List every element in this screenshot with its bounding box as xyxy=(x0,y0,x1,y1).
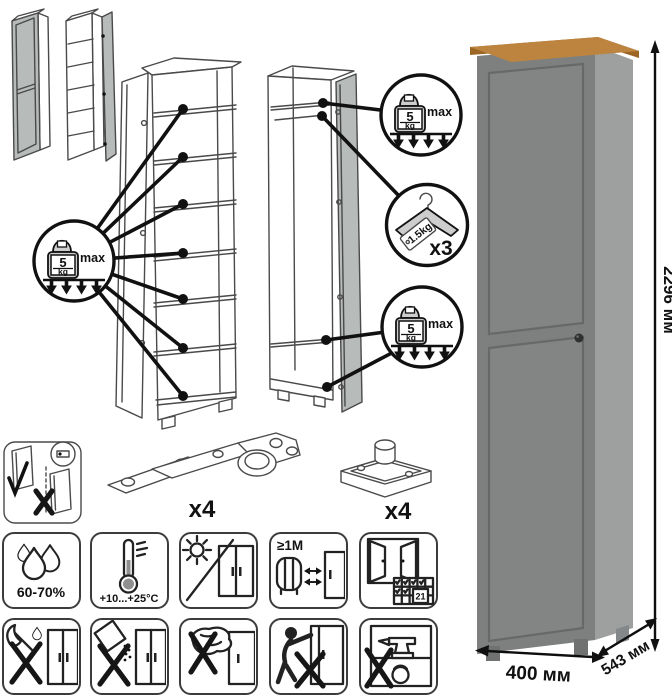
temperature-icon xyxy=(120,540,147,593)
no-sunlight-icon-box xyxy=(179,532,258,609)
foot-icon xyxy=(341,440,431,497)
shelf-load-badge xyxy=(34,221,114,301)
ventilation-icon-box: 21 xyxy=(359,532,438,609)
hanging-section-diagram: 1.5kg x3 xyxy=(250,52,480,447)
no-liquids-icon-box xyxy=(2,618,81,695)
width-dimension-label: 400 мм xyxy=(505,662,571,686)
calendar-days-label: 21 xyxy=(415,592,425,602)
distance-label: ≥1М xyxy=(277,538,303,553)
hinge-count-label: x4 xyxy=(189,496,216,523)
depth-dimension-label: 543 мм xyxy=(599,637,653,679)
humidity-icon xyxy=(18,544,59,579)
height-dimension-label: 2296 мм xyxy=(660,266,672,334)
ventilation-icon: 21 xyxy=(368,539,433,604)
hinge-icon xyxy=(108,433,300,493)
humidity-label: 60-70% xyxy=(17,584,66,600)
bottom-shelf-load-badge xyxy=(382,287,462,367)
kettlebell-icon xyxy=(393,666,409,683)
no-overload-icon-box xyxy=(359,618,438,695)
door-alignment-icon xyxy=(4,442,81,523)
no-abrasives-icon-box xyxy=(90,618,169,695)
cabinet-side xyxy=(595,46,633,640)
foot-count-label: x4 xyxy=(385,498,412,525)
hanger-count-label: x3 xyxy=(429,237,452,260)
temperature-label: +10...+25°C xyxy=(100,593,159,605)
open-door xyxy=(336,74,362,412)
heat-distance-icon-box: ≥1М xyxy=(269,532,348,609)
door-knob xyxy=(575,334,584,343)
no-abrasives-icon xyxy=(95,621,166,684)
height-dimension: 2296 мм xyxy=(651,40,672,652)
humidity-icon-box: 60-70% xyxy=(2,532,81,609)
product-render: 2296 мм 400 мм 543 мм xyxy=(452,0,672,700)
hardware-row: x4 x4 xyxy=(0,425,455,537)
no-overload-icon xyxy=(367,626,431,686)
calendar-icon: 21 xyxy=(394,578,433,604)
shelf-load-diagram: 5 kg max xyxy=(10,48,255,440)
no-drag-icon-box xyxy=(269,618,348,695)
no-sponge-icon-box xyxy=(179,618,258,695)
no-sponge-icon xyxy=(191,628,255,684)
no-drag-icon xyxy=(278,626,343,686)
no-liquids-icon xyxy=(7,625,78,684)
no-sunlight-icon xyxy=(183,536,253,600)
heat-distance-icon xyxy=(277,552,345,598)
temperature-icon-box: +10...+25°C xyxy=(90,532,169,609)
top-shelf-load-badge xyxy=(381,75,461,155)
